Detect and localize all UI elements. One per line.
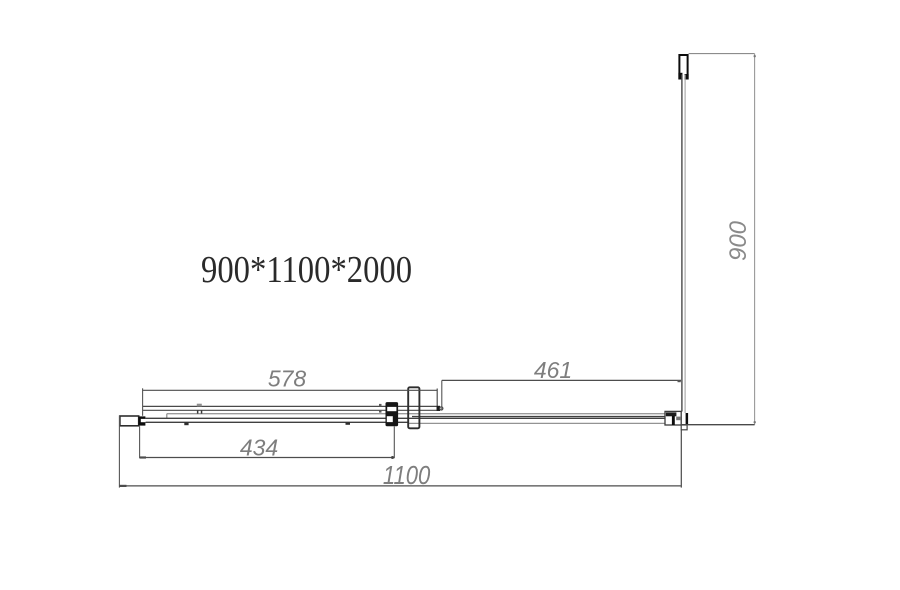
svg-text:900: 900 (725, 220, 752, 261)
svg-text:900*1100*2000: 900*1100*2000 (201, 248, 412, 291)
svg-text:578: 578 (268, 366, 307, 392)
svg-text:461: 461 (534, 357, 572, 383)
svg-text:1100: 1100 (383, 461, 431, 490)
svg-text:434: 434 (240, 435, 278, 461)
